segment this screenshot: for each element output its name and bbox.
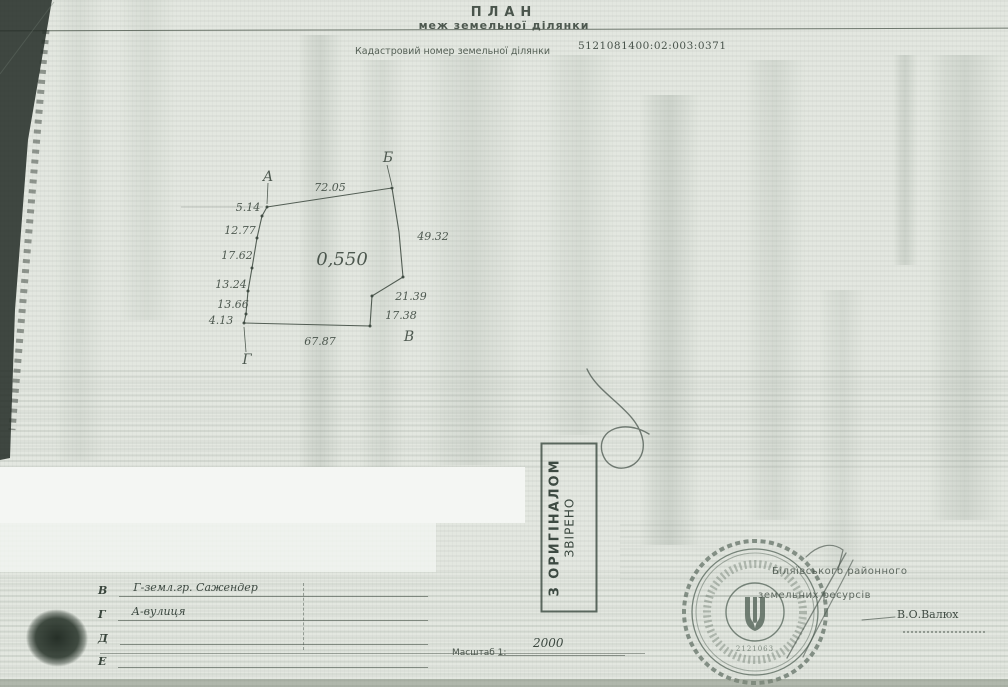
plot-vertex-dot: [243, 322, 246, 325]
plot-vertex-label: Б: [382, 150, 393, 166]
plot-dimension-label: 49.32: [416, 230, 449, 243]
verification-stamp: З ОРИГІНАЛОМ ЗВІРЕНО: [541, 443, 598, 613]
plot-vertex-label: А: [262, 169, 274, 185]
plot-dimension-label: 13.24: [215, 278, 247, 291]
signature-caption-line: [903, 631, 985, 633]
handwritten-stroke: [862, 617, 895, 620]
plot-vertex-dot: [245, 313, 248, 316]
official-seal: 2121063: [684, 541, 845, 683]
legend-text: А-вулиця: [118, 605, 428, 621]
legend-row: В Г-земл.гр. Сажендер: [98, 581, 428, 597]
plot-boundary-line: [370, 277, 403, 326]
scan-streak: [820, 290, 865, 570]
legend-row: Д: [98, 629, 428, 645]
legend-letter: В: [98, 584, 107, 597]
plot-dimension-label: 67.87: [304, 335, 336, 348]
plot-boundary-line: [392, 188, 403, 277]
trident-icon: [745, 597, 765, 631]
legend-text: [118, 652, 428, 668]
plot-dimension-label: 4.13: [208, 314, 234, 327]
plot-boundary-line: [244, 327, 246, 352]
land-plot-polygon: АБВГ72.055.1412.7717.6213.2413.664.1349.…: [181, 150, 449, 368]
scan-streak: [745, 60, 805, 520]
plot-dimension-label: 72.05: [314, 181, 346, 194]
scan-streak: [640, 95, 700, 545]
seal-number: 2121063: [736, 645, 774, 653]
official-title-line-1: Біляївського районного: [772, 566, 907, 577]
plot-dimension-label: 5.14: [236, 201, 261, 214]
scan-streak: [893, 55, 918, 265]
plot-vertex-dot: [256, 237, 259, 240]
scan-streak: [55, 0, 105, 460]
scale-value: 2000: [533, 636, 564, 650]
plot-dimension-label: 21.39: [394, 290, 427, 303]
plot-vertex-dot: [261, 215, 264, 218]
legend-row: Е: [98, 652, 428, 668]
scan-streak: [928, 55, 1003, 520]
plot-vertex-label: Г: [241, 352, 252, 368]
cadastral-number-value: 5121081400:02:003:0371: [578, 40, 727, 52]
plot-vertex-dot: [371, 295, 374, 298]
stamp-line-2: ЗВІРЕНО: [563, 445, 577, 611]
plot-boundary-line: [267, 188, 392, 207]
scan-edge-bottom: [0, 679, 1008, 687]
scan-streak: [425, 55, 520, 465]
legend-row: Г А-вулиця: [98, 605, 428, 621]
stamp-line-1: З ОРИГІНАЛОМ: [548, 445, 563, 611]
plot-area-label: 0,550: [316, 249, 368, 270]
plot-vertex-label: В: [403, 329, 414, 345]
legend-text: [120, 629, 428, 645]
scale-value-underline: [498, 655, 625, 656]
plot-boundary-line: [244, 323, 370, 326]
legend-letter: Г: [98, 608, 106, 621]
signature-name: В.О.Валюх: [897, 608, 959, 621]
plot-vertex-dot: [369, 325, 372, 328]
scan-streak: [120, 0, 175, 320]
scan-streak: [545, 55, 615, 435]
scan-streak: [0, 368, 1008, 468]
plot-vertex-dot: [266, 206, 269, 209]
plot-boundary-line: [267, 183, 268, 204]
plot-dimension-label: 17.38: [385, 309, 417, 322]
official-title-line-2: земельних ресурсів: [758, 590, 871, 601]
plot-vertex-dot: [391, 187, 394, 190]
plot-boundary-line: [244, 207, 267, 323]
scanned-land-plan-page: ПЛАН меж земельної ділянки Кадастровий н…: [0, 0, 1008, 687]
plot-dimension-label: 12.77: [224, 224, 256, 237]
scan-edge-left: [0, 0, 54, 460]
legend-letter: Е: [98, 655, 106, 668]
page-title: ПЛАН: [0, 5, 1008, 20]
scale-rule: [100, 653, 645, 654]
scan-streak: [360, 60, 405, 470]
plot-vertex-dot: [247, 290, 250, 293]
dark-seal-blob: [13, 597, 100, 679]
handwritten-marks: [587, 369, 895, 658]
plot-vertex-dot: [251, 267, 254, 270]
plot-dimension-label: 13.66: [217, 298, 249, 311]
white-band: [0, 523, 436, 572]
legend-letter: Д: [98, 632, 108, 645]
cadastral-number-label: Кадастровий номер земельної ділянки: [355, 46, 550, 57]
scan-streak: [298, 35, 343, 470]
plot-dimension-label: 17.62: [221, 249, 253, 262]
legend-text: Г-земл.гр. Сажендер: [119, 581, 428, 597]
scale-label: Масштаб 1:: [452, 648, 506, 658]
white-band: [0, 467, 525, 523]
plot-boundary-line: [387, 165, 392, 186]
legend-guide-line: [303, 583, 304, 650]
plot-vertex-dot: [402, 276, 405, 279]
